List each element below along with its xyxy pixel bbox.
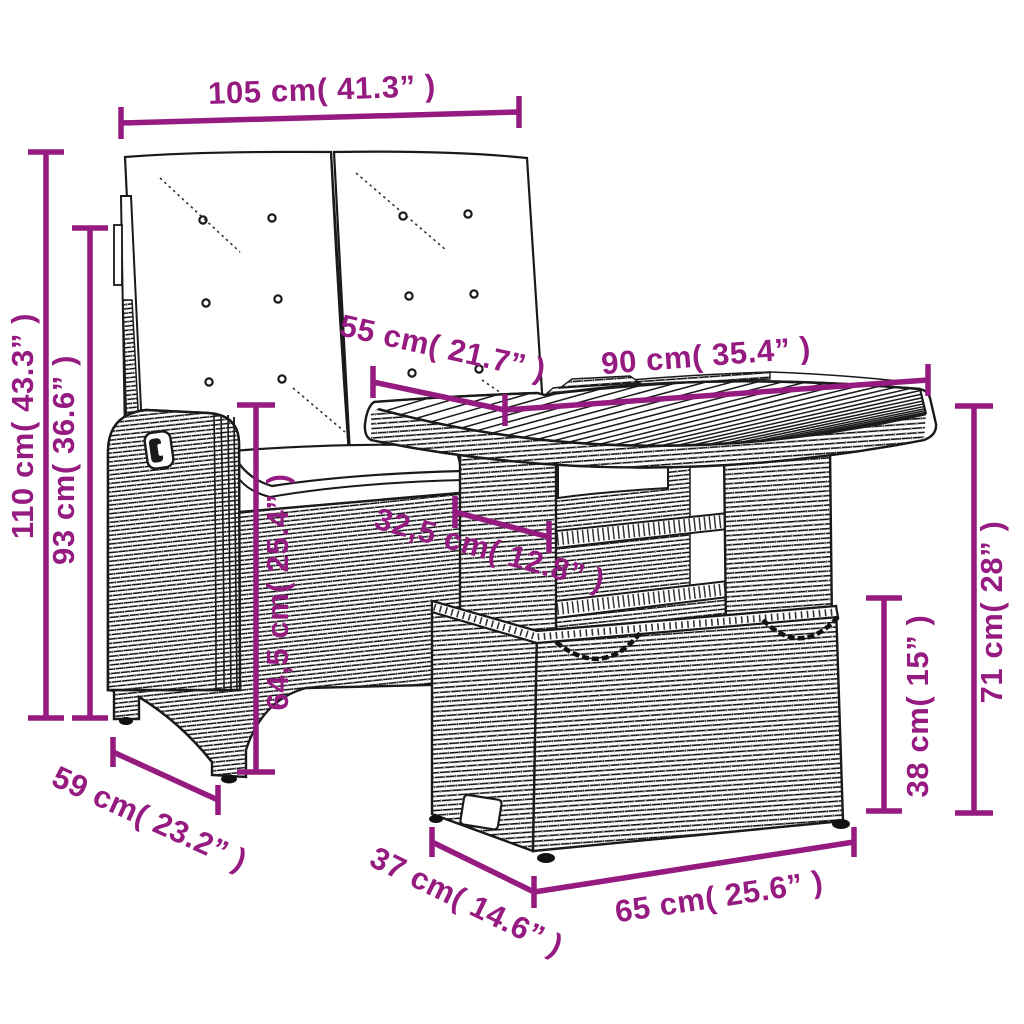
svg-text:93 cm( 36.6” ): 93 cm( 36.6” ) [46,355,81,565]
svg-text:71 cm( 28” ): 71 cm( 28” ) [974,521,1009,704]
svg-text:38 cm( 15” ): 38 cm( 15” ) [900,615,935,798]
svg-text:110 cm( 43.3” ): 110 cm( 43.3” ) [5,313,40,539]
svg-text:64,5 cm( 25.4” ): 64,5 cm( 25.4” ) [260,473,295,710]
